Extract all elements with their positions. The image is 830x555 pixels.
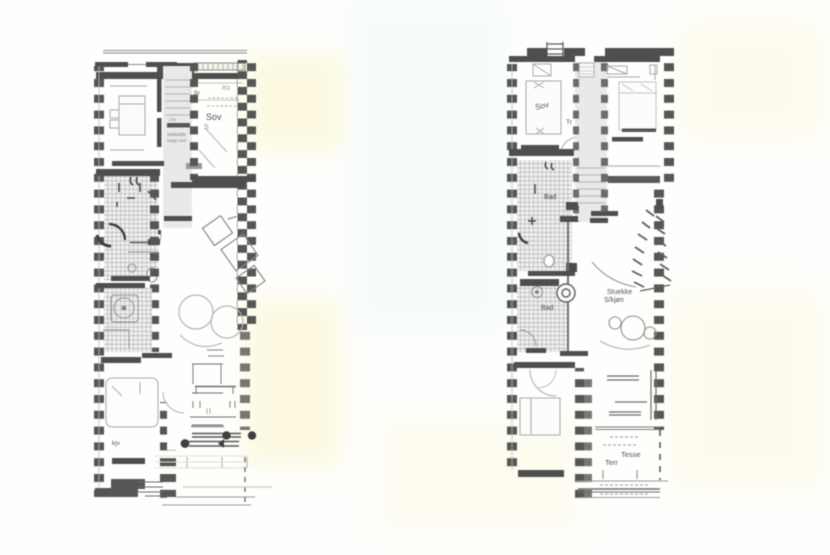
- svg-text:S/kjøn: S/kjøn: [604, 297, 624, 304]
- svg-text:Br: Br: [194, 91, 200, 97]
- svg-text:Stuekke: Stuekke: [607, 289, 632, 296]
- svg-text:Sov: Sov: [206, 112, 222, 122]
- svg-text:trapp ned: trapp ned: [167, 138, 187, 143]
- svg-text:kjv: kjv: [112, 440, 121, 447]
- svg-text:Bad: Bad: [541, 305, 554, 312]
- svg-text:Terr: Terr: [605, 458, 618, 467]
- svg-text:Tr: Tr: [566, 119, 573, 126]
- svg-text:14x: 14x: [169, 117, 177, 122]
- svg-text:R3: R3: [222, 86, 230, 92]
- svg-text:Tesse: Tesse: [621, 450, 641, 459]
- svg-text:Bad: Bad: [544, 194, 557, 201]
- svg-text:S: S: [204, 124, 209, 131]
